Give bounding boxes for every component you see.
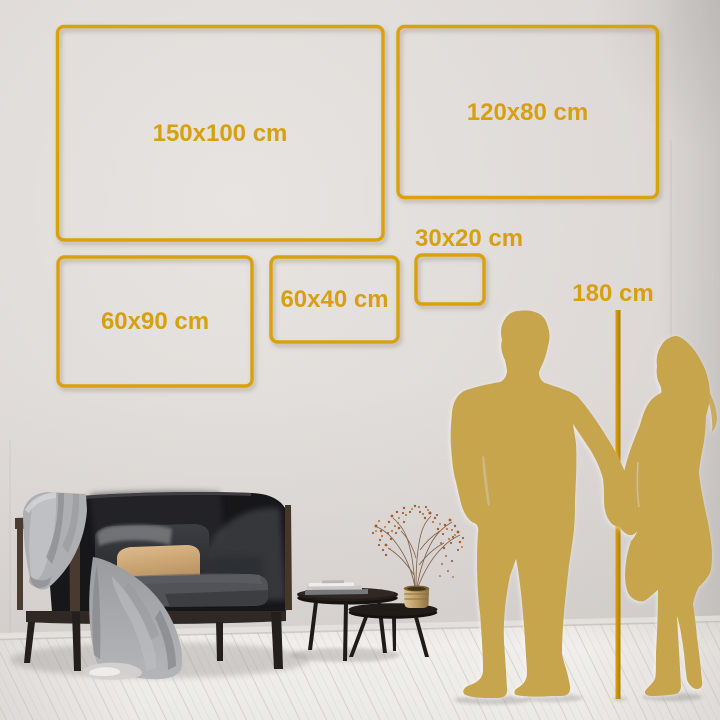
svg-text:150x100 cm: 150x100 cm (153, 120, 288, 147)
svg-text:60x40 cm: 60x40 cm (280, 286, 388, 313)
svg-text:30x20 cm: 30x20 cm (415, 225, 523, 252)
svg-text:120x80 cm: 120x80 cm (467, 99, 588, 126)
svg-text:60x90 cm: 60x90 cm (101, 308, 209, 335)
svg-text:180 cm: 180 cm (572, 280, 653, 307)
